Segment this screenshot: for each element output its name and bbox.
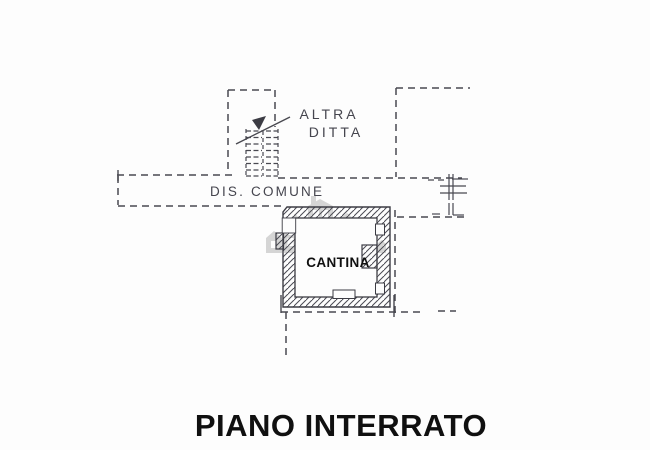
altra-ditta-label-line1: ALTRA [299,106,358,122]
altra-ditta-label-line2: DITTA [309,124,363,140]
floorplan-canvas: ALTRA DITTA DIS. COMUNE CANTINA PIANO IN… [0,0,650,450]
section-marker [428,174,468,215]
dis-comune-label: DIS. COMUNE [210,184,324,199]
plan-title: PIANO INTERRATO [195,408,487,443]
floorplan-page: ALTRA DITTA DIS. COMUNE CANTINA PIANO IN… [0,0,650,450]
cantina-label: CANTINA [306,255,370,270]
staircase [236,116,290,176]
